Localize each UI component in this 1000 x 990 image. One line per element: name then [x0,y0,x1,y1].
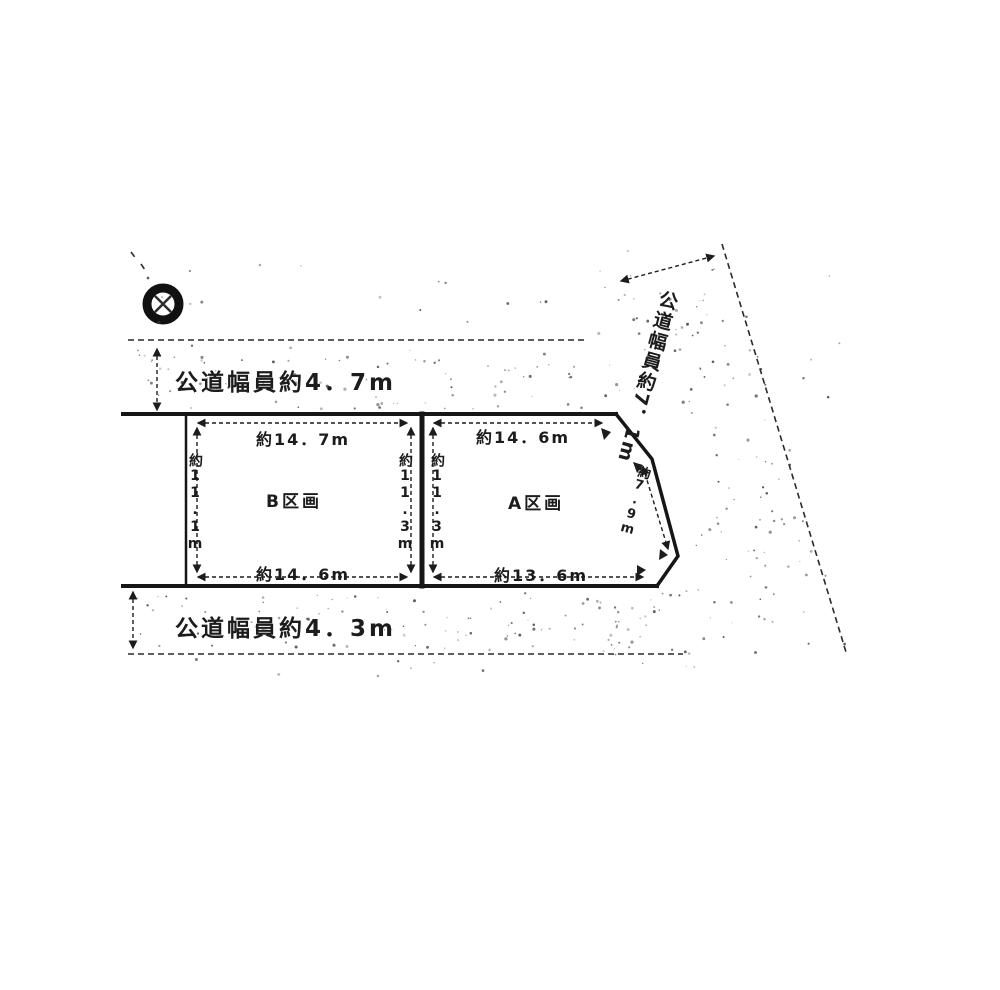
plot-b-top-dim: 約14．7m [238,426,368,450]
plot-b-name: B区画 [266,487,322,512]
top-road-width-label: 公道幅員約4．7m [175,363,396,397]
plot-a-top-dim: 約14．6m [458,424,588,448]
bottom-road-width-label: 公道幅員約4．3m [175,609,396,643]
plot-b-right-dim: 約11.3m [398,453,412,553]
right-road-width-arrow [621,256,714,281]
plot-b-bottom-dim: 約14．6m [238,561,368,585]
diagram-linework [0,0,1000,990]
road-boundary-dashed-lines [128,244,846,654]
utility-pole-icon [147,288,179,320]
plot-a-name: A区画 [508,489,564,514]
land-plot-diagram: 公道幅員約4．7m 公道幅員約4．3m 公道幅員約7．1m B区画 A区画 約1… [0,0,1000,990]
pole-leader-dashes [131,252,145,270]
plot-a-bottom-dim: 約13．6m [476,562,606,586]
plot-a-left-dim: 約11.3m [430,453,444,553]
plot-b-left-dim: 約11.1m [188,453,202,553]
right-road-far-edge-dashed [722,244,846,652]
